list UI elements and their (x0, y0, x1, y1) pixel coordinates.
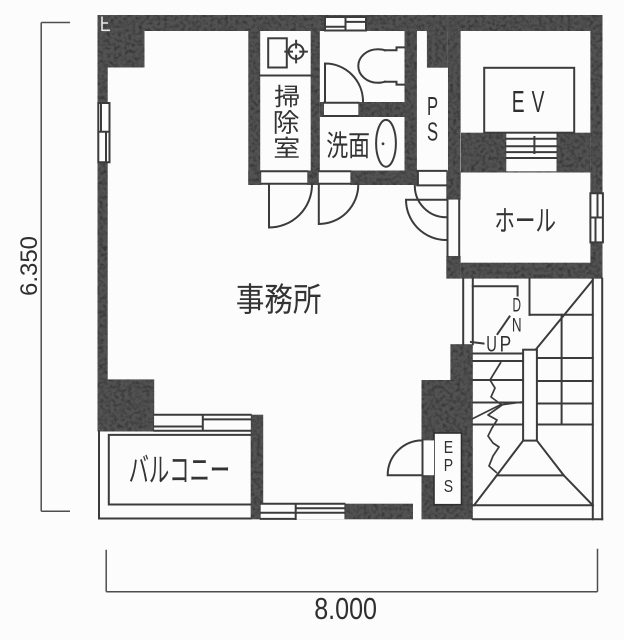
svg-text:S: S (427, 117, 438, 147)
svg-text:D: D (512, 296, 521, 316)
svg-text:E: E (512, 86, 525, 120)
svg-text:V: V (532, 86, 545, 120)
svg-text:U: U (486, 332, 497, 357)
svg-text:N: N (512, 315, 522, 336)
svg-text:P: P (444, 455, 453, 475)
svg-text:P: P (500, 333, 512, 357)
svg-text:6.350: 6.350 (16, 236, 43, 296)
svg-text:8.000: 8.000 (314, 590, 377, 625)
svg-text:S: S (444, 476, 454, 496)
